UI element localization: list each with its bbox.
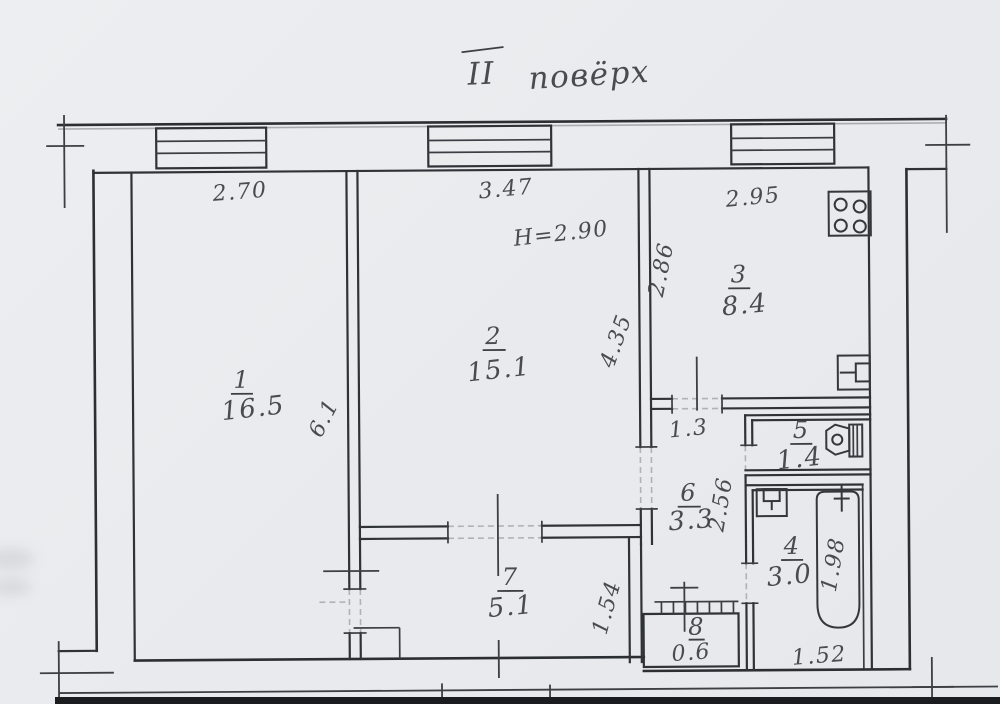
dim-room1-depth: 6.1 [304, 395, 344, 442]
wall-room7-corridor [629, 539, 642, 662]
washbasin-icon [757, 489, 787, 516]
room5-number: 5 [793, 416, 810, 444]
toilet-icon [826, 424, 862, 456]
wall-room2-hall [633, 169, 658, 544]
window-room2 [428, 126, 551, 167]
dim-bath-depth: 1.98 [817, 535, 851, 593]
dim-room2-depth: 4.35 [595, 311, 637, 372]
dim-room2-width: 3.47 [477, 174, 534, 204]
wall-room2-room7 [360, 520, 641, 544]
room8-area: 0.6 [671, 639, 712, 667]
room3-number: 3 [731, 260, 748, 288]
stove-icon [829, 191, 871, 235]
room7-number: 7 [502, 563, 519, 591]
room8-number: 8 [688, 613, 705, 641]
room4-number: 4 [783, 532, 801, 560]
dim-room1-width: 2.70 [211, 178, 269, 207]
wall-kitchen-hall [651, 393, 870, 414]
room5-area: 1.4 [775, 441, 824, 476]
dim-hall-width: 1.3 [668, 415, 710, 444]
floor-title-numeral: ІІ [466, 56, 496, 93]
floor-title-word: повёрх [528, 54, 651, 97]
page-edge-band [55, 697, 1000, 704]
room6-number: 6 [680, 479, 697, 507]
room2-number: 2 [484, 322, 502, 350]
dim-ceiling-height: H=2.90 [511, 216, 610, 252]
room1-area: 16.5 [220, 390, 287, 427]
scanned-floor-plan-page: ІІ повёрх 2.70 3.47 H=2.90 2.95 2.86 4.3… [0, 0, 1000, 704]
room3-area: 8.4 [720, 288, 768, 322]
dim-bath-width: 1.52 [791, 642, 848, 671]
wall-room1-room2 [340, 171, 366, 659]
room6-area: 3.3 [667, 504, 715, 537]
dim-corridor-width: 1.54 [588, 578, 627, 638]
floor-plan-drawing: ІІ повёрх 2.70 3.47 H=2.90 2.95 2.86 4.3… [0, 0, 1000, 704]
kitchen-sink-icon [838, 355, 870, 389]
window-room1 [156, 128, 266, 169]
room2-area: 15.1 [466, 352, 533, 389]
room7-area: 5.1 [487, 590, 535, 624]
room1-number: 1 [233, 366, 250, 394]
dim-kitchen-width: 2.95 [723, 183, 781, 213]
room4-area: 3.0 [765, 559, 813, 593]
window-kitchen [731, 124, 834, 165]
